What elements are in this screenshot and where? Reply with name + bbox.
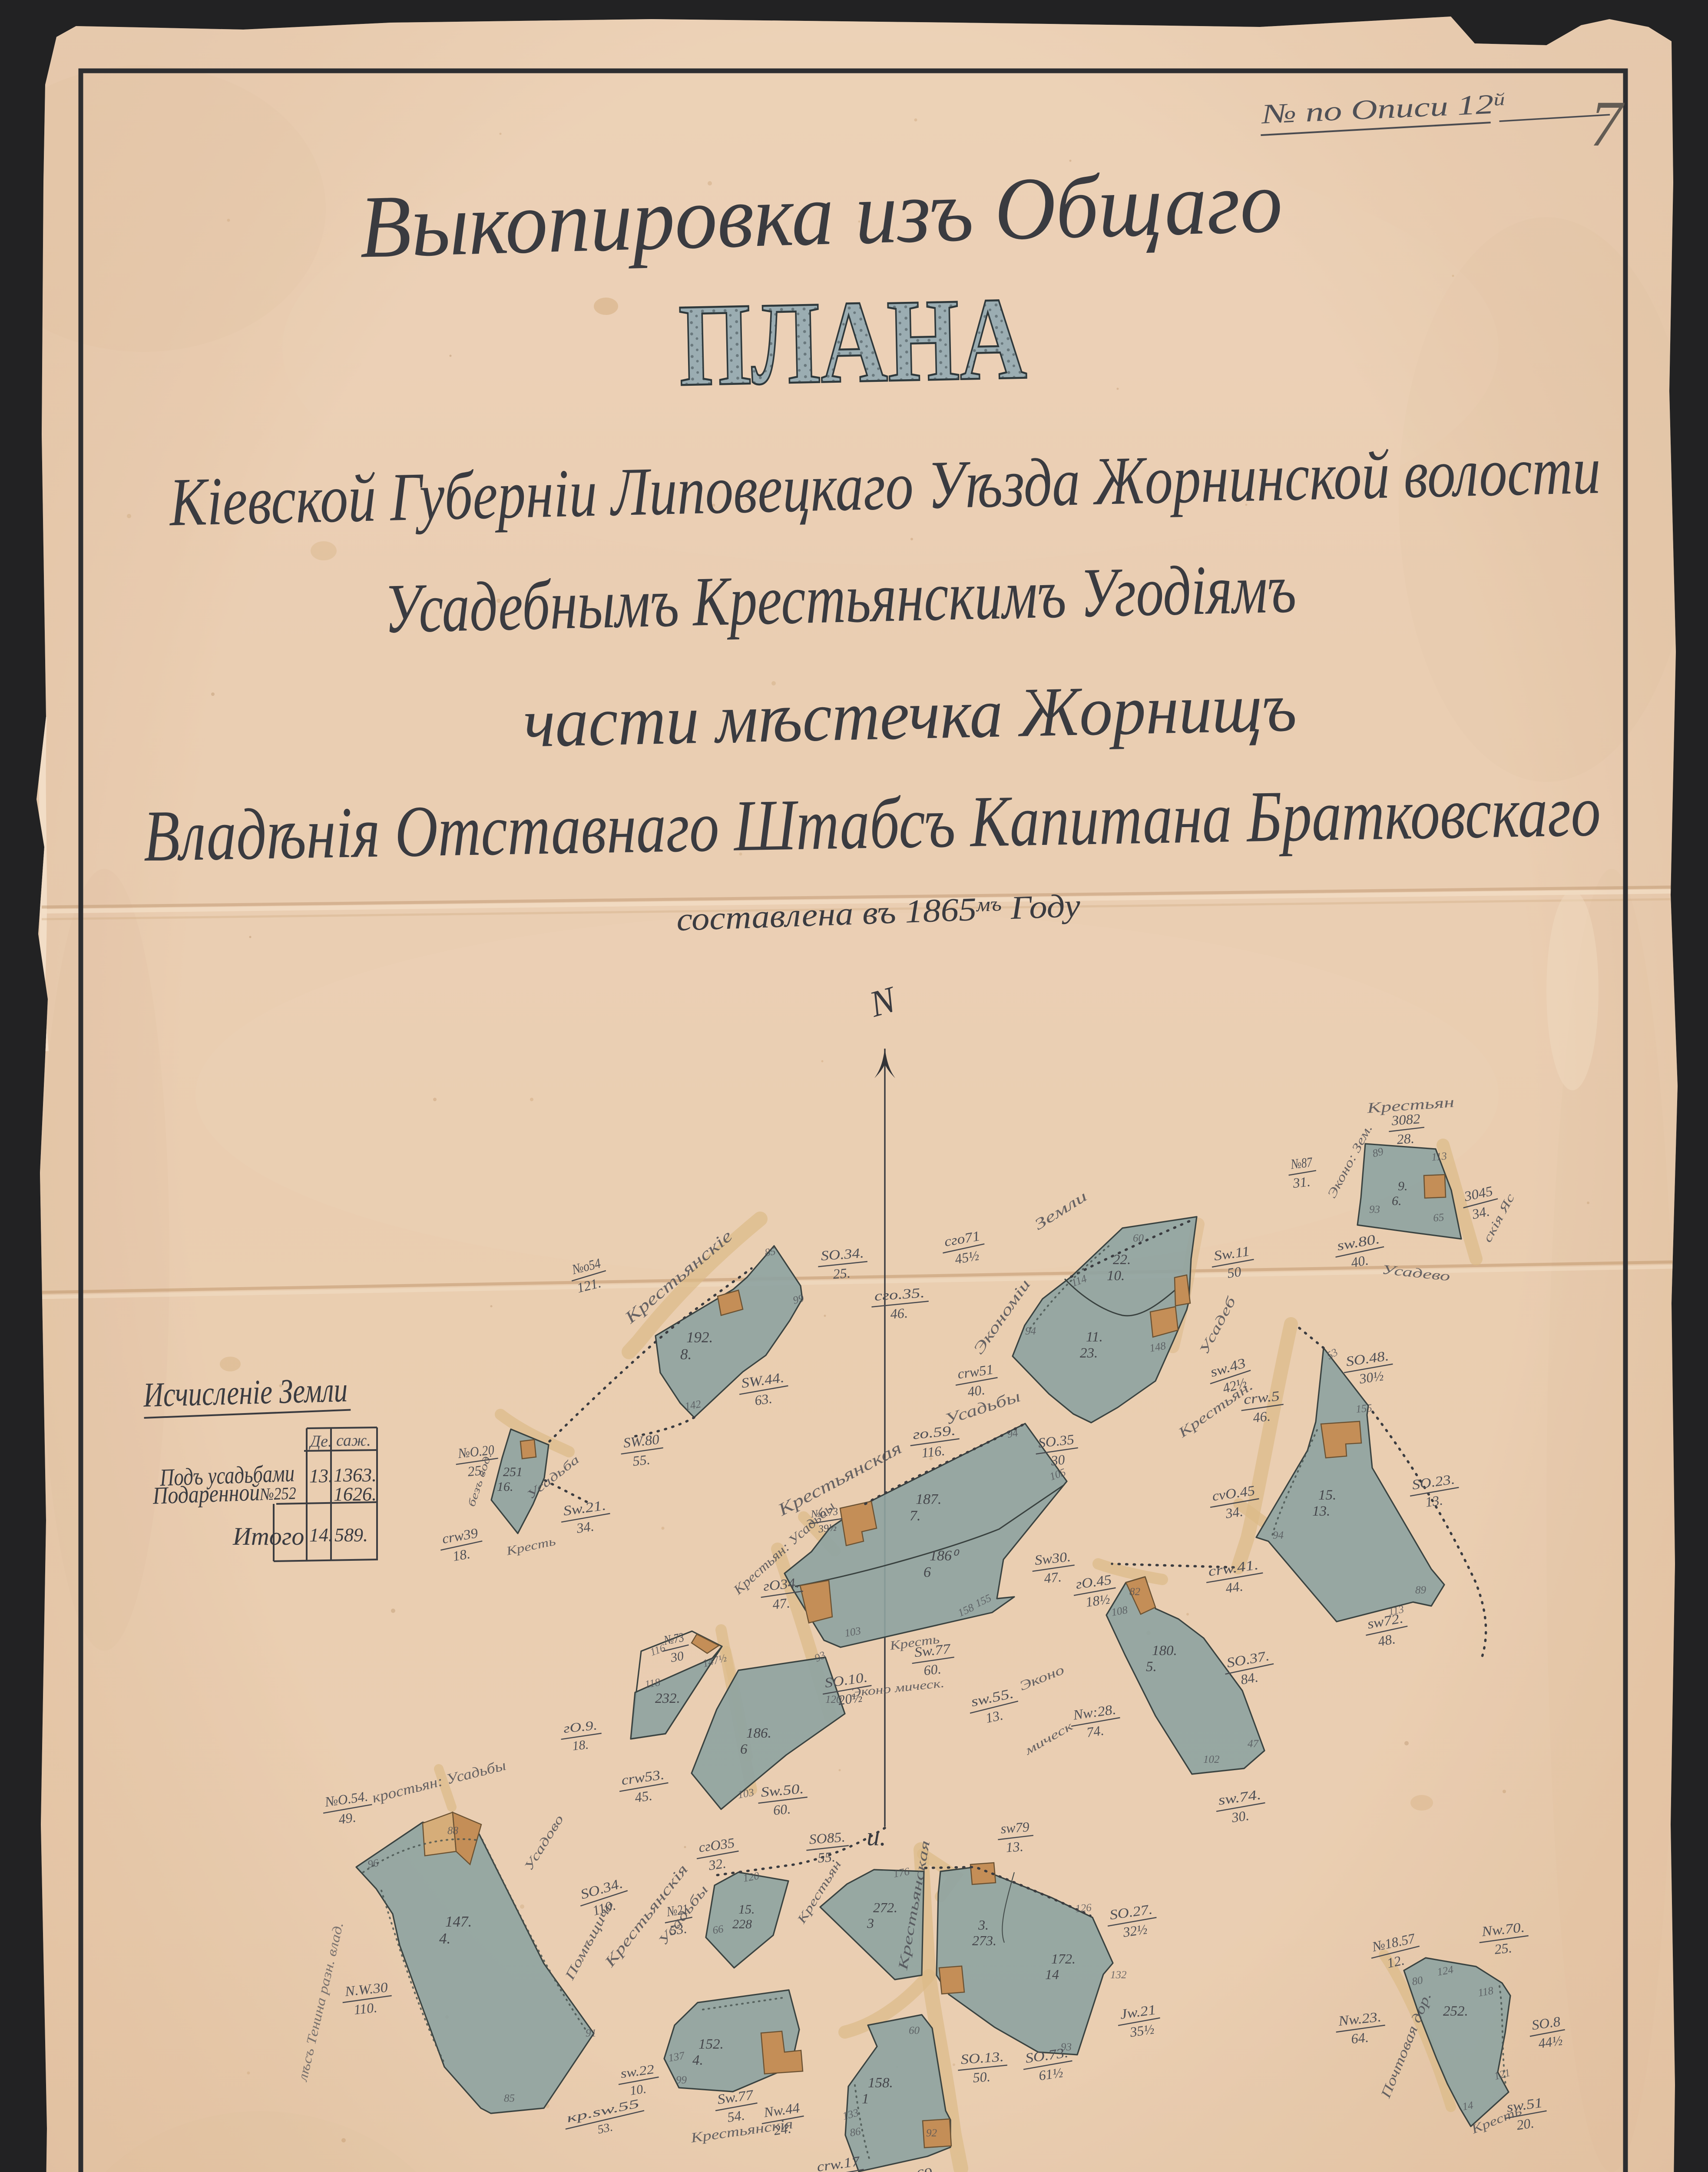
svg-text:34.: 34. [1224,1503,1244,1521]
svg-text:110.: 110. [353,2000,378,2017]
svg-text:132: 132 [1110,1969,1127,1981]
svg-text:14: 14 [1461,2099,1474,2113]
svg-text:93: 93 [1369,1204,1380,1215]
svg-text:252.: 252. [1443,2003,1468,2019]
svg-text:50.: 50. [972,2069,990,2086]
svg-text:60.: 60. [773,1801,791,1818]
svg-text:60: 60 [1133,1232,1144,1244]
svg-text:№87: №87 [1290,1154,1314,1172]
svg-text:82: 82 [1129,1586,1140,1598]
svg-text:4.: 4. [692,2053,703,2068]
svg-text:25.: 25. [832,1265,851,1282]
svg-text:части мѣстечка Жорнищъ: части мѣстечка Жорнищъ [523,668,1297,762]
svg-text:10.: 10. [629,2082,647,2098]
svg-text:4.: 4. [439,1930,450,1947]
svg-text:120: 120 [825,1694,842,1705]
svg-text:85: 85 [504,2093,515,2104]
svg-text:86: 86 [849,2126,862,2139]
svg-text:10.: 10. [1107,1268,1125,1284]
svg-text:13.: 13. [1424,1492,1444,1510]
svg-text:80: 80 [1411,1974,1424,1988]
svg-text:1626.: 1626. [334,1483,377,1505]
svg-text:63.: 63. [754,1391,773,1408]
svg-text:5.: 5. [1146,1659,1157,1675]
svg-text:Исчисленіе Земли: Исчисленіе Земли [142,1371,348,1414]
svg-text:1363.: 1363. [334,1464,377,1486]
svg-text:147.: 147. [445,1913,472,1930]
svg-text:251: 251 [503,1465,523,1479]
svg-text:66: 66 [712,1923,725,1937]
svg-text:31.: 31. [1292,1173,1311,1191]
svg-text:13.: 13. [1005,1838,1023,1855]
svg-text:186.: 186. [746,1725,771,1741]
svg-text:6: 6 [924,1564,931,1580]
svg-text:85: 85 [764,1245,776,1259]
svg-text:14: 14 [1045,1967,1059,1982]
svg-text:16.: 16. [497,1480,513,1494]
svg-text:272.: 272. [873,1900,897,1915]
svg-text:23.: 23. [1080,1345,1098,1361]
svg-text:187.: 187. [916,1491,942,1507]
svg-text:60: 60 [909,2025,920,2036]
svg-text:155: 155 [1355,1402,1373,1415]
svg-text:55.: 55. [632,1451,651,1469]
svg-text:44.: 44. [1225,1578,1244,1596]
svg-text:94: 94 [1273,1530,1284,1541]
svg-text:172.: 172. [1051,1951,1076,1967]
svg-text:SO.34.: SO.34. [820,1245,864,1264]
svg-text:22.: 22. [1113,1252,1131,1268]
svg-text:30.: 30. [1230,1808,1250,1825]
svg-text:273.: 273. [972,1933,996,1948]
svg-text:45.: 45. [634,1788,653,1805]
svg-text:47.: 47. [1043,1569,1063,1586]
svg-text:15.: 15. [1318,1487,1336,1503]
svg-text:Де.: Де. [309,1432,332,1450]
svg-text:49.: 49. [338,1809,357,1827]
svg-text:152.: 152. [698,2036,724,2052]
svg-text:158.: 158. [868,2075,893,2091]
svg-text:47.: 47. [772,1595,791,1612]
svg-text:126: 126 [1075,1902,1092,1915]
svg-text:SO85.: SO85. [808,1829,845,1847]
svg-text:32.: 32. [707,1855,727,1873]
svg-text:96: 96 [367,1857,380,1871]
svg-text:18.: 18. [451,1546,471,1564]
svg-text:13.: 13. [1312,1503,1330,1519]
svg-text:3.: 3. [978,1917,989,1933]
svg-text:589.: 589. [334,1524,368,1546]
svg-text:40.: 40. [1350,1252,1370,1270]
svg-text:25.: 25. [1494,1940,1513,1957]
svg-text:88: 88 [447,1825,459,1837]
svg-text:93: 93 [1061,2041,1072,2053]
svg-text:89: 89 [1415,1584,1427,1596]
svg-text:6: 6 [740,1742,748,1757]
svg-text:саж.: саж. [336,1431,371,1450]
svg-text:186⁰: 186⁰ [930,1548,960,1564]
svg-text:84.: 84. [1239,1669,1259,1687]
svg-text:30: 30 [669,1649,685,1665]
svg-text:SO.13.: SO.13. [960,2049,1004,2067]
svg-text:74.: 74. [1086,1722,1105,1740]
svg-text:102: 102 [1203,1754,1220,1765]
svg-text:99: 99 [676,2074,687,2086]
svg-text:Итого: Итого [232,1522,304,1550]
svg-text:65: 65 [1433,1212,1444,1224]
svg-text:50: 50 [1226,1264,1242,1281]
svg-text:60.: 60. [923,1661,942,1678]
svg-text:11.: 11. [1086,1329,1103,1345]
svg-text:28.: 28. [1396,1130,1414,1147]
svg-text:64.: 64. [1351,2029,1370,2046]
svg-text:40.: 40. [967,1382,986,1400]
svg-text:94: 94 [1025,1325,1036,1337]
svg-text:3: 3 [867,1915,874,1931]
svg-text:192.: 192. [686,1329,713,1346]
svg-text:7.: 7. [910,1508,921,1524]
svg-text:9.: 9. [1398,1179,1408,1193]
svg-text:180.: 180. [1152,1643,1177,1659]
svg-text:и.: и. [867,1822,886,1851]
svg-text:18.: 18. [572,1737,589,1753]
svg-text:14.: 14. [309,1524,333,1546]
svg-text:13.: 13. [309,1465,333,1487]
svg-text:94: 94 [1006,1427,1019,1440]
svg-text:48.: 48. [1377,1631,1397,1649]
svg-text:46.: 46. [890,1305,908,1322]
svg-text:15.: 15. [738,1902,755,1917]
svg-text:92: 92 [926,2127,937,2139]
svg-text:sw79: sw79 [1000,1819,1029,1837]
svg-text:ПЛАНА: ПЛАНА [678,273,1028,411]
svg-text:228: 228 [732,1917,752,1931]
svg-text:91: 91 [586,2027,596,2039]
svg-text:232.: 232. [655,1691,680,1706]
svg-text:113: 113 [1431,1150,1447,1163]
svg-text:46.: 46. [1252,1408,1271,1425]
svg-text:47: 47 [1248,1738,1259,1750]
svg-text:34.: 34. [575,1518,595,1536]
svg-text:1: 1 [862,2091,869,2107]
svg-text:8.: 8. [680,1346,692,1363]
svg-text:116.: 116. [921,1443,946,1460]
svg-text:6.: 6. [1392,1194,1402,1208]
svg-text:7: 7 [1590,88,1625,160]
